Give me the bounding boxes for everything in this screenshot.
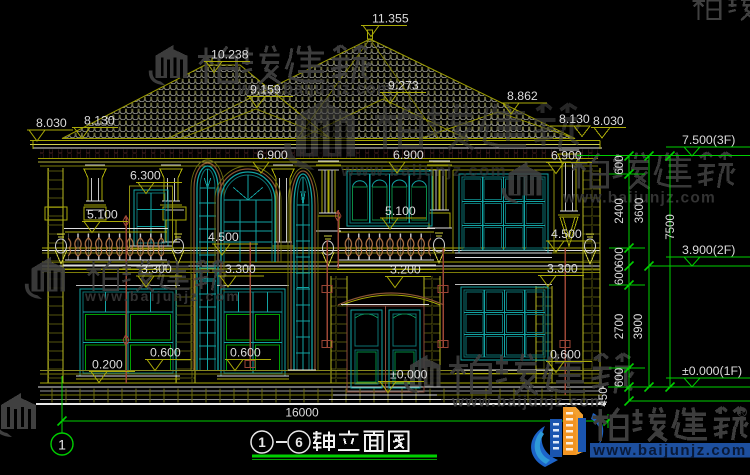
svg-text:9.273: 9.273 <box>388 79 419 93</box>
svg-text:5.100: 5.100 <box>385 204 416 218</box>
svg-text:±0.000(1F): ±0.000(1F) <box>682 364 742 378</box>
svg-text:www.baijunjz.com: www.baijunjz.com <box>340 161 507 180</box>
svg-text:6.300: 6.300 <box>130 169 161 183</box>
svg-text:10.238: 10.238 <box>211 48 249 62</box>
svg-text:www.baijunjz.com: www.baijunjz.com <box>592 442 746 459</box>
svg-text:8.030: 8.030 <box>36 116 67 130</box>
svg-text:3900: 3900 <box>633 314 645 340</box>
svg-text:3.300: 3.300 <box>547 262 578 276</box>
svg-text:3.300: 3.300 <box>141 262 172 276</box>
svg-text:0.600: 0.600 <box>230 346 261 360</box>
svg-text:4.500: 4.500 <box>551 227 582 241</box>
svg-text:8.862: 8.862 <box>507 89 538 103</box>
svg-text:6.900: 6.900 <box>257 148 288 162</box>
svg-text:600: 600 <box>614 247 626 266</box>
svg-text:600: 600 <box>614 266 626 285</box>
svg-text:600: 600 <box>614 155 626 174</box>
svg-text:5.100: 5.100 <box>87 208 118 222</box>
svg-text:www.baijunjz.com: www.baijunjz.com <box>84 288 241 304</box>
svg-text:11.355: 11.355 <box>372 12 409 26</box>
svg-text:4.500: 4.500 <box>208 230 239 244</box>
svg-text:3.900(2F): 3.900(2F) <box>682 243 735 257</box>
svg-text:2700: 2700 <box>614 314 626 340</box>
svg-text:3.200: 3.200 <box>390 263 421 277</box>
svg-text:1: 1 <box>58 437 66 453</box>
svg-text:8.130: 8.130 <box>559 112 590 126</box>
svg-text:3.300: 3.300 <box>225 262 256 276</box>
svg-text:7.500(3F): 7.500(3F) <box>682 133 735 147</box>
svg-text:R: R <box>740 410 745 417</box>
svg-text:3600: 3600 <box>634 198 646 224</box>
svg-text:6: 6 <box>295 435 303 450</box>
svg-text:±0.000: ±0.000 <box>390 368 428 382</box>
svg-text:2400: 2400 <box>614 198 626 224</box>
svg-text:16000: 16000 <box>285 406 319 420</box>
svg-text:8.030: 8.030 <box>593 114 624 128</box>
svg-text:8.130: 8.130 <box>84 114 115 128</box>
svg-text:9.159: 9.159 <box>250 83 281 97</box>
svg-text:7500: 7500 <box>665 214 677 240</box>
svg-text:1: 1 <box>258 435 266 450</box>
svg-text:450: 450 <box>598 387 610 406</box>
svg-text:600: 600 <box>614 368 626 387</box>
svg-text:0.600: 0.600 <box>550 348 581 362</box>
svg-text:0.600: 0.600 <box>150 346 181 360</box>
svg-text:0.200: 0.200 <box>92 358 123 372</box>
svg-text:www.baijunjz.com: www.baijunjz.com <box>451 394 605 411</box>
svg-text:6.900: 6.900 <box>393 148 424 162</box>
